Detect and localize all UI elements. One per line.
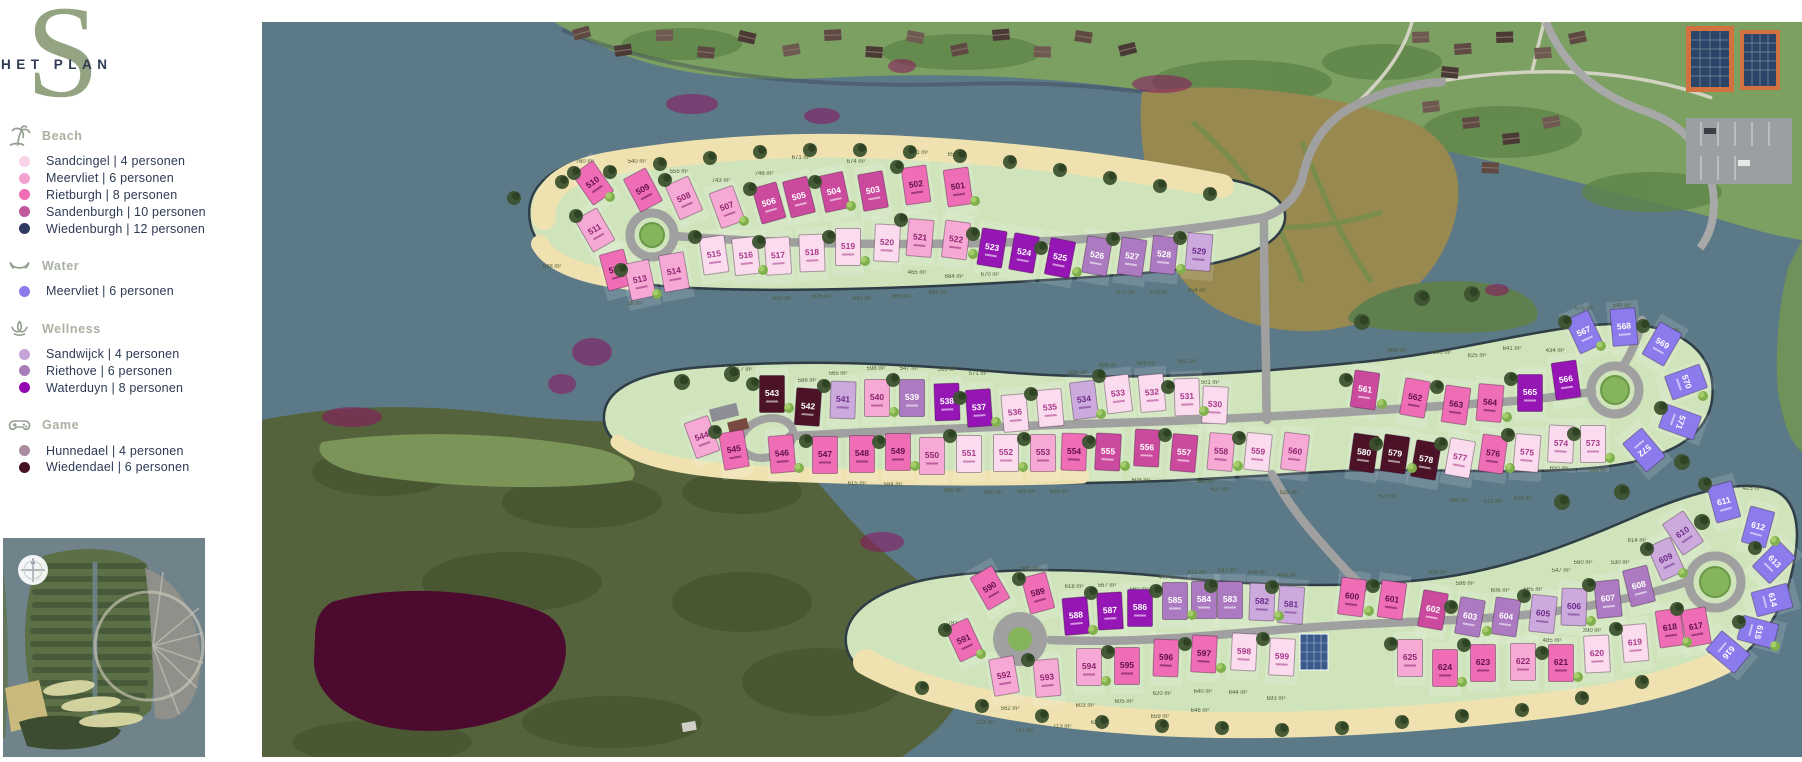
area-label: 567 m² [1098,583,1117,589]
tree [1084,586,1098,600]
area-label: 537 m² [1218,568,1237,574]
svg-text:588: 588 [1068,609,1083,620]
lot-566[interactable]: 566 [1551,360,1581,400]
tree [1204,579,1218,593]
lot-519[interactable]: 519 [836,229,861,266]
tree [1384,637,1398,651]
shrub [1586,616,1596,626]
shrub [1233,461,1243,471]
svg-text:559: 559 [1251,445,1266,456]
shrub [1573,672,1583,682]
lot-596[interactable]: 596 [1153,639,1179,677]
shrub [605,192,615,202]
svg-text:532: 532 [1144,386,1159,397]
svg-text:549: 549 [891,446,905,456]
lot-624[interactable]: 624 [1433,650,1458,687]
legend-color-dot [19,365,30,376]
shrub [1457,677,1467,687]
lot-532[interactable]: 532 [1138,373,1166,412]
lot-558[interactable]: 558 [1207,432,1235,471]
lot-521[interactable]: 521 [906,218,934,257]
svg-text:553: 553 [1036,447,1050,457]
lot-598[interactable]: 598 [1231,633,1258,671]
lot-563[interactable]: 563 [1441,385,1471,425]
lot-515[interactable]: 515 [699,235,729,275]
area-label: 501 m² [1201,380,1220,386]
svg-text:540: 540 [870,392,884,402]
area-label: 626 m² [813,294,832,300]
tree [746,377,760,391]
tree [1504,372,1518,386]
area-label: 443 m² [1278,573,1297,579]
minimap-image[interactable] [3,538,205,757]
shrub [968,249,978,259]
legend-color-dot [19,286,30,297]
lot-565[interactable]: 565 [1518,375,1543,412]
area-label: 454 m² [1188,288,1207,294]
lot-536[interactable]: 536 [1001,393,1029,432]
tree [1457,638,1471,652]
svg-text:530: 530 [1208,399,1223,410]
svg-text:601: 601 [1384,593,1400,605]
lot-549[interactable]: 549 [886,434,911,471]
lot-517[interactable]: 517 [764,237,792,276]
legend-item-label: Wiedendael | 6 personen [46,460,189,474]
shrub [1199,406,1209,416]
svg-text:502: 502 [908,178,924,190]
tree [1101,645,1115,659]
tree [1335,721,1349,735]
svg-text:555: 555 [1101,446,1116,457]
tree [1582,578,1596,592]
tree [555,175,569,189]
shrub [1605,453,1615,463]
lot-623[interactable]: 623 [1471,645,1496,682]
shrub [1770,536,1780,546]
lot-585[interactable]: 585 [1163,583,1188,620]
tree [1670,602,1684,616]
tree [1732,615,1746,629]
svg-text:604: 604 [1498,610,1514,622]
svg-text:552: 552 [999,447,1013,457]
tree [1215,721,1229,735]
legend-item-label: Sandenburgh | 10 personen [46,205,206,219]
area-label: 648 m² [543,264,562,270]
area-label: 565 m² [829,371,848,377]
area-label: 713 m² [1053,724,1072,730]
area-label: 641 m² [1503,346,1522,352]
tree [1024,387,1038,401]
tree [703,151,717,165]
tree [966,227,980,241]
lot-587[interactable]: 587 [1097,592,1124,630]
area-label: 743 m² [712,178,731,184]
tree [1558,315,1572,329]
lot-520[interactable]: 520 [874,224,901,262]
logo-title: HET PLAN [1,57,113,72]
legend-color-dot [19,189,30,200]
tree [1149,584,1163,598]
lot-548[interactable]: 548 [850,436,875,473]
area-label: 573 m² [1150,290,1169,296]
lot-625[interactable]: 625 [1398,640,1423,677]
tree [1515,703,1529,717]
lot-599[interactable]: 599 [1269,638,1296,676]
tree [1339,373,1353,387]
legend-item-wiedendael[interactable]: Wiedendael | 6 personen [6,459,236,476]
lot-594[interactable]: 594 [1077,649,1102,686]
lot-593[interactable]: 593 [1033,658,1061,697]
svg-text:557: 557 [1177,446,1192,457]
lot-529[interactable]: 529 [1185,232,1213,271]
svg-text:597: 597 [1197,648,1212,659]
shrub [1377,399,1387,409]
legend-item-wiedenburgh[interactable]: Wiedenburgh | 12 personen [6,220,236,237]
tree [603,165,617,179]
tree [708,425,722,439]
lot-605[interactable]: 605 [1529,594,1558,633]
legend-color-dot [19,173,30,184]
svg-text:584: 584 [1197,594,1211,604]
shrub [1682,637,1692,647]
lot-579[interactable]: 579 [1380,434,1410,474]
area-label: 565 m² [984,490,1003,496]
legend-item-label: Sandcingel | 4 personen [46,154,185,168]
area-label: 530 m² [1611,560,1630,566]
tree [1158,428,1172,442]
tree [886,373,900,387]
parking-lot [1686,118,1792,184]
shrub [1596,341,1606,351]
tree [1535,646,1549,660]
legend-item-riethove[interactable]: Riethove | 6 personen [6,363,236,380]
legend-header-wellness: Wellness [6,317,236,341]
tree [1517,589,1531,603]
shrub [1502,412,1512,422]
legend-item-label: Sandwijck | 4 personen [46,347,179,361]
legend-item-meervliet[interactable]: Meervliet | 6 personen [6,170,236,187]
tree [953,391,967,405]
lot-586[interactable]: 586 [1128,590,1153,627]
legend-section-beach: BeachSandcingel | 4 personenMeervliet | … [6,124,236,237]
area-label: 588 m² [1017,489,1036,495]
lot-547[interactable]: 547 [813,437,838,474]
tree [1021,653,1035,667]
lot-556[interactable]: 556 [1134,429,1161,467]
legend-item-waterduyn[interactable]: Waterduyn | 8 personen [6,379,236,396]
lot-518[interactable]: 518 [799,234,825,272]
svg-text:586: 586 [1133,602,1147,612]
svg-text:554: 554 [1067,446,1082,456]
site-plan-map[interactable]: 760 m²540 m²555 m²743 m²746 m²671 m²674 … [262,22,1802,757]
legend-item-label: Riethove | 6 personen [46,364,172,378]
area-label: 641 m² [853,296,872,302]
lot-546[interactable]: 546 [768,434,796,473]
lot-555[interactable]: 555 [1095,433,1122,471]
tree [1434,437,1448,451]
lot-541[interactable]: 541 [830,381,856,419]
area-label: 588 m² [798,378,817,384]
area-label: 610 m² [773,296,792,302]
tree [1203,187,1217,201]
legend-section-title: Game [42,418,79,432]
lot-573[interactable]: 573 [1581,426,1606,463]
lot-531[interactable]: 531 [1174,378,1200,416]
area-label: 509 m² [1137,361,1156,367]
svg-text:536: 536 [1007,406,1022,417]
area-label: 688 m² [1196,479,1215,485]
area-label: 608 m² [1132,478,1151,484]
legend-item-sandenburgh[interactable]: Sandenburgh | 10 personen [6,203,236,220]
tree [953,149,967,163]
tree [614,263,628,277]
lot-619[interactable]: 619 [1621,623,1649,662]
lot-543[interactable]: 543 [760,376,785,413]
tree [1609,622,1623,636]
lot-621[interactable]: 621 [1549,645,1574,682]
lot-597[interactable]: 597 [1191,635,1218,673]
tree [803,143,817,157]
tree [1366,579,1380,593]
svg-text:527: 527 [1124,250,1140,262]
lot-620[interactable]: 620 [1584,635,1611,673]
lot-606[interactable]: 606 [1561,588,1587,626]
area-label: 694 m² [929,290,948,296]
svg-text:542: 542 [801,401,816,412]
lot-601[interactable]: 601 [1377,580,1407,620]
lot-535[interactable]: 535 [1036,388,1064,427]
compass-icon[interactable] [18,555,48,585]
svg-text:600: 600 [1344,590,1360,602]
area-label: 498 m² [1099,363,1118,369]
lot-540[interactable]: 540 [865,380,890,417]
svg-text:573: 573 [1586,438,1600,448]
svg-text:516: 516 [738,249,753,260]
shrub [846,201,856,211]
lot-575[interactable]: 575 [1513,433,1541,472]
tree [1640,542,1654,556]
tree [1748,541,1762,555]
svg-text:556: 556 [1140,442,1155,453]
svg-text:583: 583 [1223,594,1237,604]
lot-557[interactable]: 557 [1170,433,1198,472]
area-label: 528 m² [1280,490,1299,496]
area-label: 620 m² [1153,691,1172,697]
svg-text:546: 546 [774,447,789,458]
tree [724,366,740,382]
tree [1694,514,1710,530]
lot-501[interactable]: 501 [943,167,973,207]
svg-text:582: 582 [1255,596,1270,606]
svg-text:521: 521 [913,231,928,242]
svg-text:576: 576 [1485,447,1501,459]
shrub [1364,606,1374,616]
svg-text:564: 564 [1483,396,1498,407]
lot-523[interactable]: 523 [977,228,1007,268]
legend-color-dot [19,223,30,234]
svg-text:518: 518 [805,247,820,257]
lot-622[interactable]: 622 [1511,644,1536,681]
gamepad-icon [6,413,33,437]
tree [753,145,767,159]
shrub [794,463,804,473]
legend-section-title: Beach [42,129,83,143]
tree [688,230,702,244]
area-label: 627 m² [1211,487,1230,493]
shrub [784,403,794,413]
tree [1178,637,1192,651]
svg-text:534: 534 [1076,393,1092,405]
lot-537[interactable]: 537 [965,389,993,428]
legend-color-dot [19,382,30,393]
shrub [758,265,768,275]
svg-text:533: 533 [1110,387,1126,399]
lot-600[interactable]: 600 [1337,577,1366,617]
legend-item-label: Meervliet | 6 personen [46,171,174,185]
lot-564[interactable]: 564 [1476,383,1504,422]
tree [1095,715,1109,729]
legend-item-meervliet[interactable]: Meervliet | 6 personen [6,283,236,300]
area-label: 506 m² [1248,570,1267,576]
tree [1092,369,1106,383]
area-label: 572 m² [1117,290,1136,296]
main-map[interactable]: 760 m²540 m²555 m²743 m²746 m²671 m²674 … [262,22,1802,757]
area-label: 477 m² [1159,575,1178,581]
legend-color-dot [19,156,30,167]
tree [1103,171,1117,185]
area-label: 646 m² [1191,708,1210,714]
tree [1567,427,1581,441]
tree [752,235,766,249]
water-icon [6,254,33,278]
area-label: 670 m² [981,272,1000,278]
area-label: 746 m² [755,171,774,177]
svg-text:585: 585 [1168,595,1182,605]
lot-550[interactable]: 550 [920,438,945,475]
svg-text:621: 621 [1554,657,1568,667]
lot-522[interactable]: 522 [941,220,970,260]
lot-533[interactable]: 533 [1103,374,1132,414]
svg-text:618: 618 [1662,621,1678,633]
svg-text:565: 565 [1523,387,1537,397]
lot-527[interactable]: 527 [1117,237,1147,277]
shrub [860,256,870,266]
legend-item-rietburgh[interactable]: Rietburgh | 8 personen [6,187,236,204]
svg-text:547: 547 [818,449,832,459]
legend-section-water: WaterMeervliet | 6 personen [6,254,236,300]
tree [1106,232,1120,246]
svg-text:619: 619 [1627,636,1642,647]
lot-561[interactable]: 561 [1350,370,1380,410]
lot-588[interactable]: 588 [1062,596,1090,635]
tree [1395,715,1409,729]
area-label: 596 m² [944,488,963,494]
lot-542[interactable]: 542 [794,388,822,427]
svg-text:594: 594 [1082,661,1096,671]
legend-color-dot [19,349,30,360]
tree [1034,241,1048,255]
shrub [1678,568,1688,578]
legend-item-sandwijck[interactable]: Sandwijck | 4 personen [6,346,236,363]
page: { "logo": { "letter": "S", "title": "HET… [0,0,1802,757]
tree [1430,380,1444,394]
svg-text:625: 625 [1403,652,1417,662]
lot-539[interactable]: 539 [900,380,925,417]
legend-item-label: Waterduyn | 8 personen [46,381,183,395]
area-label: 630 m² [1429,570,1448,576]
svg-text:580: 580 [1356,446,1372,458]
area-label: 585 m² [1021,566,1040,572]
solar-building [1686,26,1780,92]
minimap[interactable] [3,538,205,757]
shrub [1274,611,1284,621]
area-label: 584 m² [884,482,903,488]
tree [1414,290,1430,306]
svg-text:593: 593 [1039,671,1054,682]
area-label: 625 m² [1468,353,1487,359]
legend-section-title: Water [42,259,79,273]
tree [1575,691,1589,705]
svg-text:538: 538 [940,396,955,406]
lot-559[interactable]: 559 [1244,432,1273,471]
tree [1501,428,1515,442]
lot-553[interactable]: 553 [1031,435,1056,472]
lot-534[interactable]: 534 [1069,380,1098,420]
lot-560[interactable]: 560 [1280,432,1309,472]
svg-text:595: 595 [1120,660,1134,670]
svg-text:563: 563 [1448,398,1464,410]
lot-607[interactable]: 607 [1594,579,1623,618]
lot-604[interactable]: 604 [1491,597,1521,637]
area-label: 644 m² [1229,690,1248,696]
tree [1636,319,1650,333]
area-label: 547 m² [900,366,919,372]
lot-552[interactable]: 552 [994,435,1019,472]
area-label: 58 m² [627,301,642,307]
area-label: 603 m² [1076,703,1095,709]
svg-text:531: 531 [1180,391,1195,401]
lot-551[interactable]: 551 [957,436,982,473]
tree [743,182,757,196]
shrub [976,649,986,659]
tree [1354,314,1370,330]
shrub [1698,391,1708,401]
legend-item-sandcingel[interactable]: Sandcingel | 4 personen [6,153,236,170]
svg-text:605: 605 [1536,607,1551,618]
tree [1012,572,1026,586]
lot-502[interactable]: 502 [901,165,931,205]
area-label: 566 m² [938,367,957,373]
tree [903,145,917,159]
lot-530[interactable]: 530 [1202,386,1229,424]
tree [938,623,952,637]
svg-text:574: 574 [1554,438,1569,449]
svg-text:560: 560 [1287,445,1303,457]
legend-item-hunnedael[interactable]: Hunnedael | 4 personen [6,442,236,459]
boathouse [1300,634,1328,670]
area-label: 615 m² [848,481,867,487]
svg-text:579: 579 [1387,447,1403,459]
lot-568[interactable]: 568 [1610,307,1638,346]
svg-text:520: 520 [880,237,895,248]
lot-595[interactable]: 595 [1115,648,1140,685]
lot-583[interactable]: 583 [1218,582,1243,619]
sidebar: S HET PLAN BeachSandcingel | 4 personenM… [0,0,240,757]
tree [1053,163,1067,177]
area-label: 628 m² [1514,496,1533,502]
tree [799,434,813,448]
tree [1082,435,1096,449]
